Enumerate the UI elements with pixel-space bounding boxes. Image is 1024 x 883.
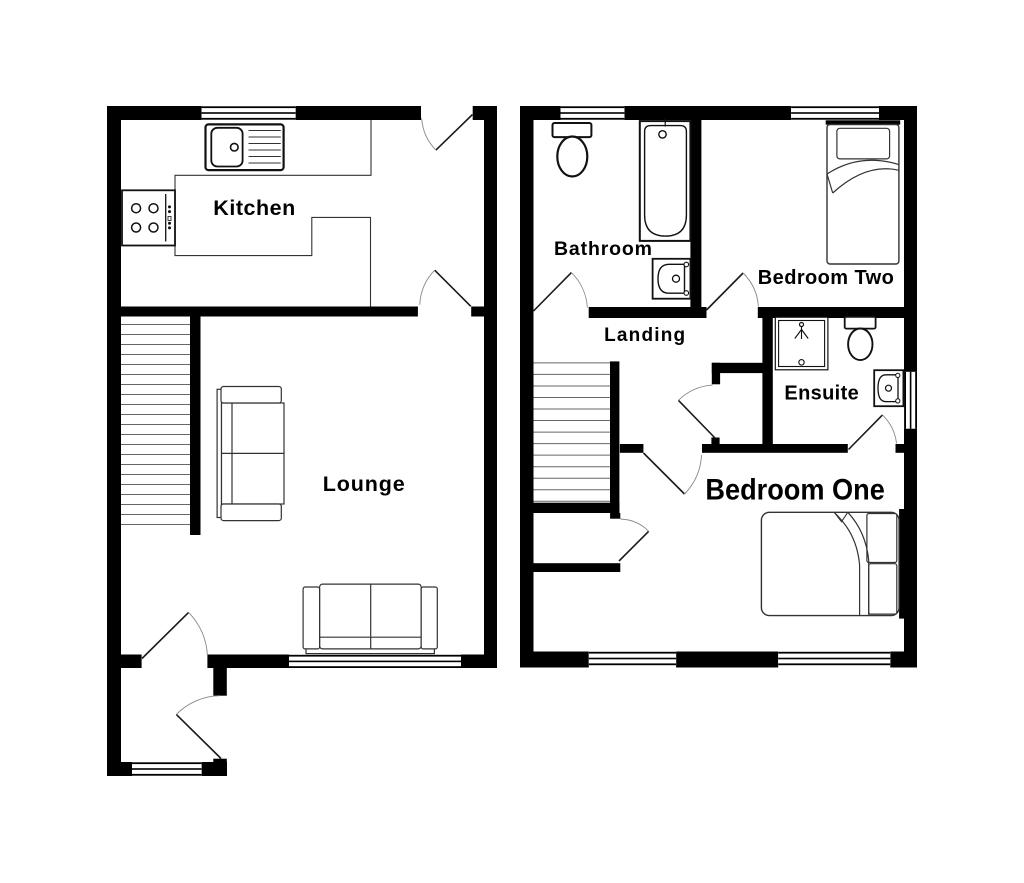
svg-text:Bedroom Two: Bedroom Two [758, 267, 894, 289]
svg-text:Kitchen: Kitchen [213, 196, 295, 220]
svg-text:Ensuite: Ensuite [784, 383, 858, 405]
svg-text:Lounge: Lounge [323, 472, 405, 496]
svg-text:Landing: Landing [604, 325, 685, 346]
svg-text:Bathroom: Bathroom [554, 238, 652, 260]
svg-text:Bedroom One: Bedroom One [705, 474, 884, 507]
